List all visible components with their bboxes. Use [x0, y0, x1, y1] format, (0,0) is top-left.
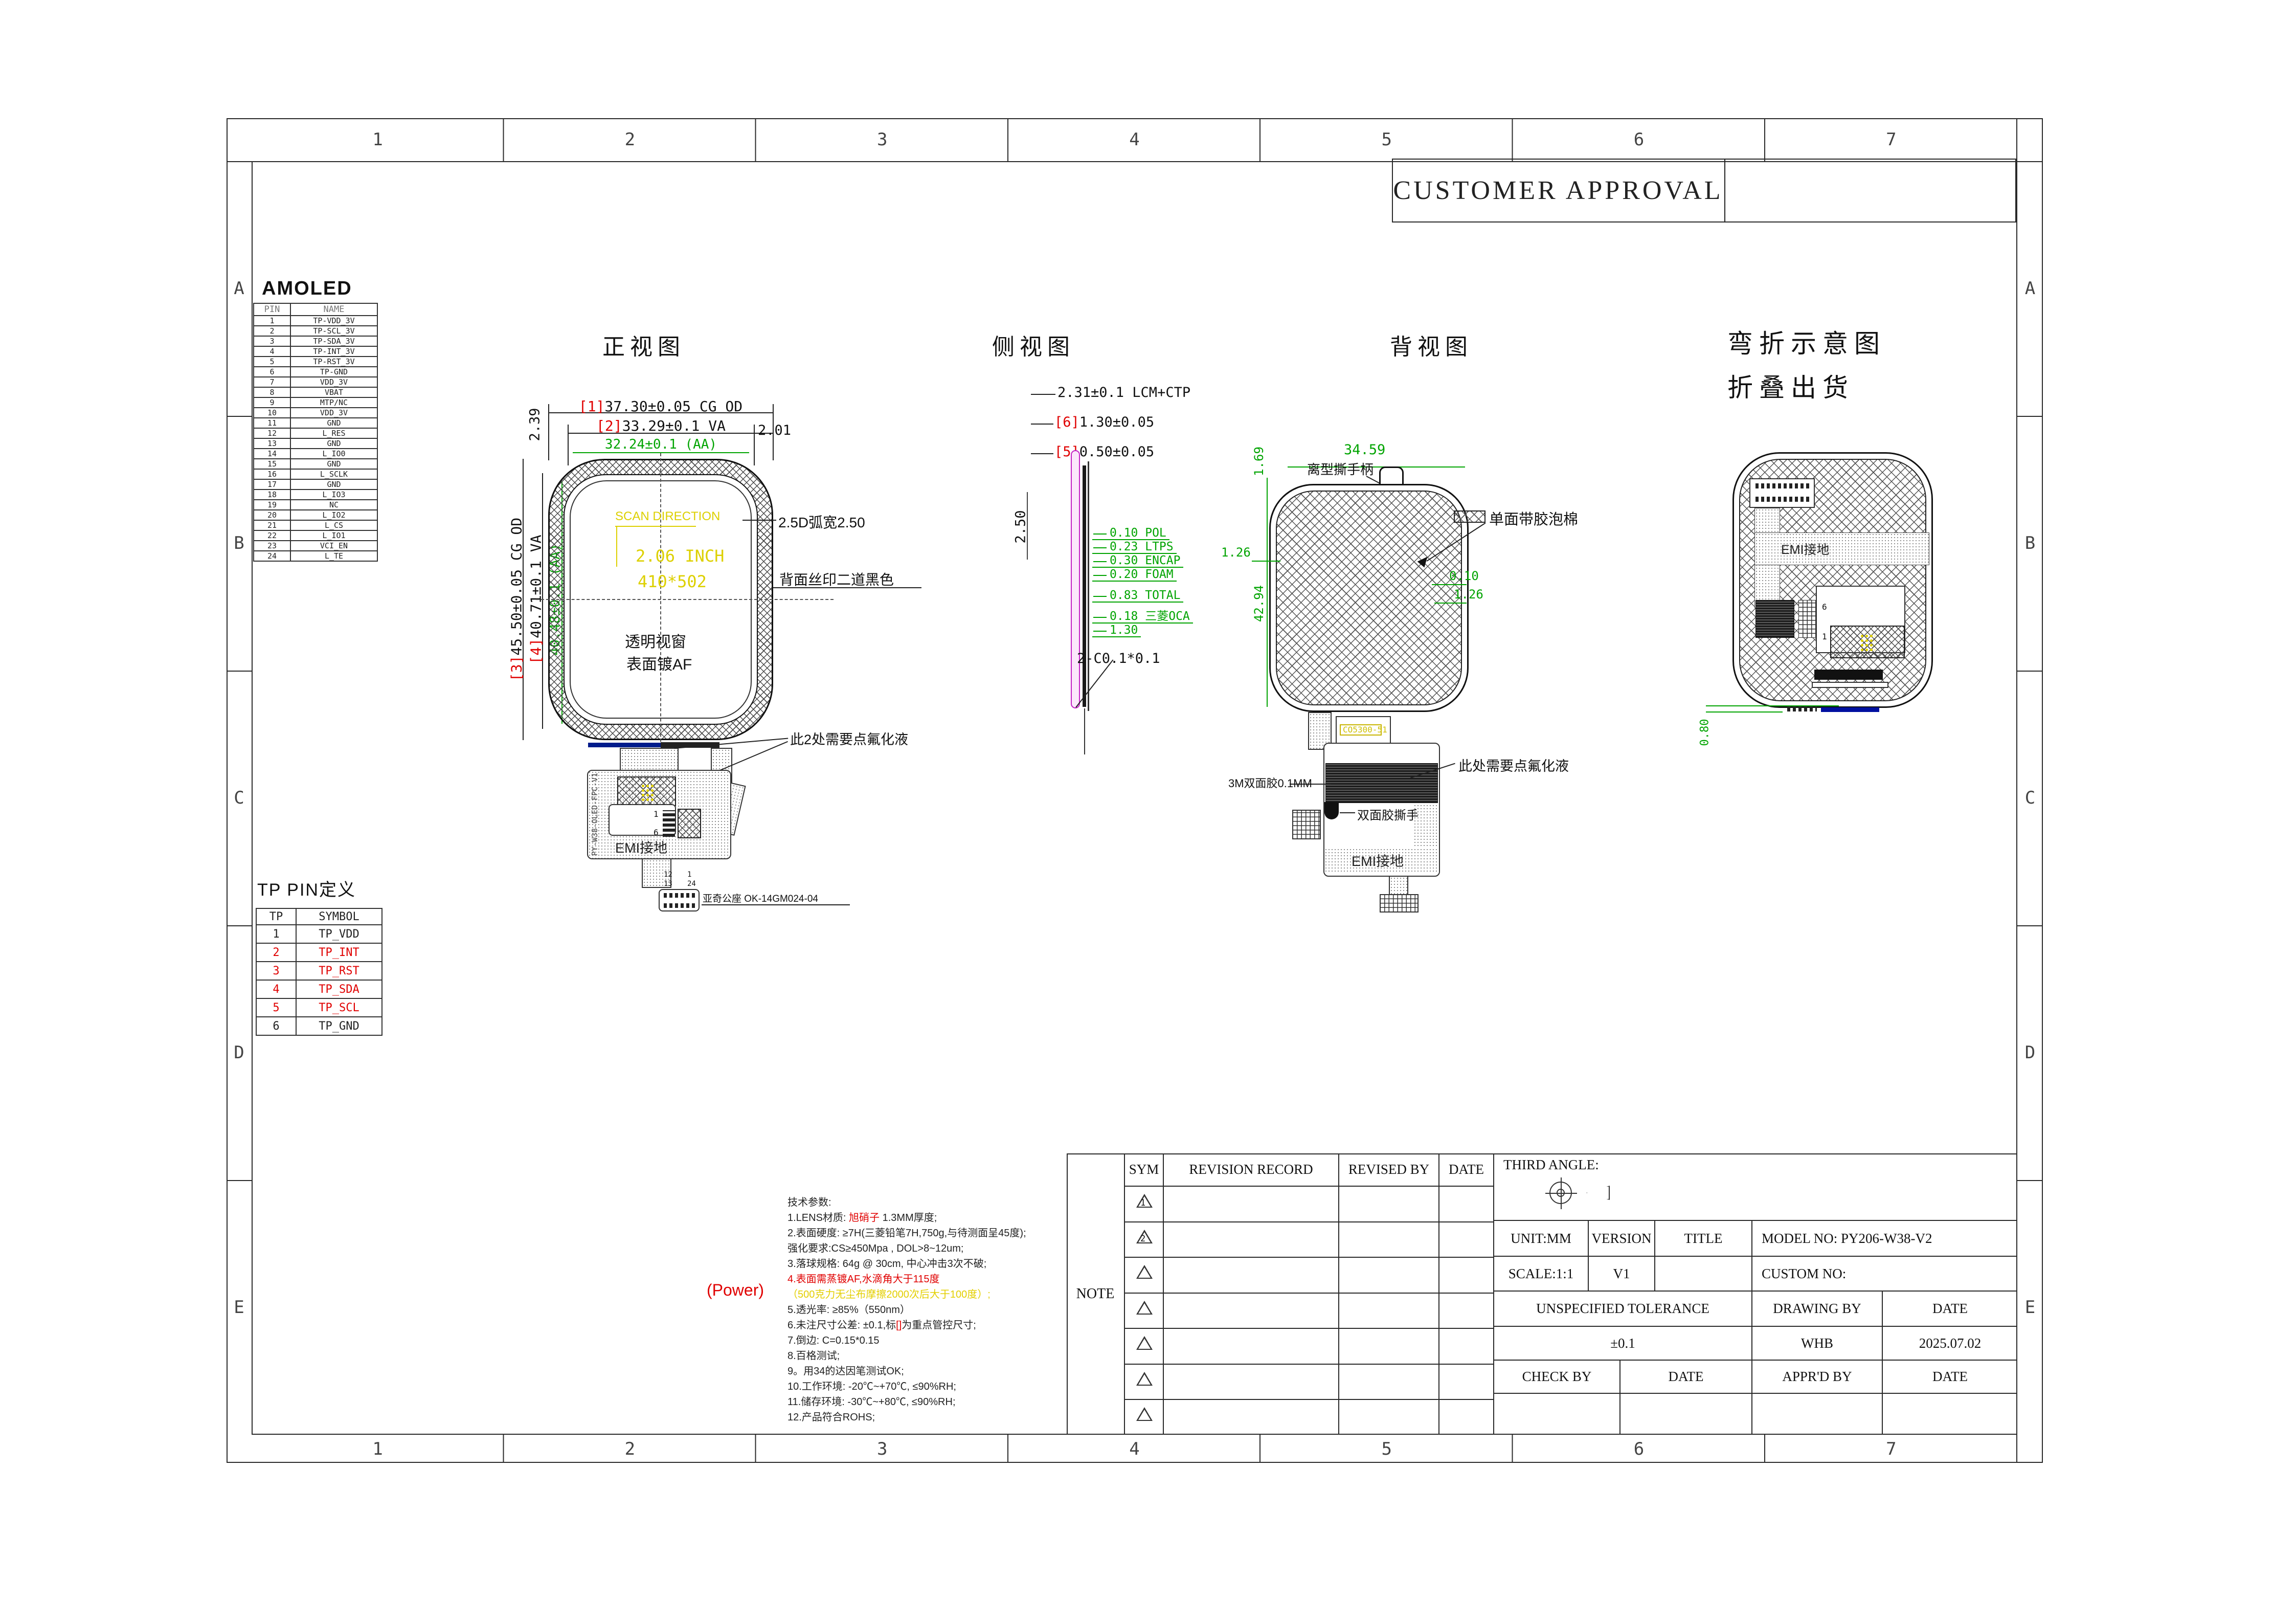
side-layer-label: 0.83 TOTAL	[1092, 590, 1183, 603]
back-fluoride-note: 此处需要点氟化液	[1458, 755, 1569, 775]
tp-pin-row: 4 TP_SDA	[256, 980, 382, 998]
amoled-pin-name: L_SCLK	[290, 469, 377, 479]
note-line: 1.LENS材质: 旭硝子 1.3MM厚度;	[787, 1210, 1026, 1226]
amoled-pin-name: MTP/NC	[290, 397, 377, 408]
bend-grid-pad	[1798, 600, 1816, 638]
front-fpc-ic	[617, 776, 676, 806]
bend-pin1-label: 1	[1822, 632, 1827, 641]
amoled-pin-name: TP-SDA_3V	[290, 336, 377, 346]
tp-pin-table: TP SYMBOL 1 TP_VDD 2 TP_INT 3 TP_RST 4 T…	[256, 908, 382, 1036]
zone-col-label: 6	[1513, 1435, 1765, 1463]
note-line: 3.落球规格: 64g @ 30cm, 中心冲击3次不破;	[787, 1256, 1026, 1272]
amoled-pin-row: 13 GND	[254, 438, 377, 449]
tail-pin-13: 13	[664, 880, 672, 888]
revision-row	[1125, 1293, 1493, 1328]
amoled-table-title: AMOLED	[262, 278, 352, 300]
dim-tag: [3]	[508, 656, 525, 682]
back-dark-stiffener	[1325, 763, 1438, 803]
amoled-pin-row: 10 VDD_3V	[254, 408, 377, 418]
revision-col-sym: SYM	[1125, 1153, 1163, 1186]
amoled-pin-row: 6 TP-GND	[254, 367, 377, 377]
unspecified-tolerance-cell: UNSPECIFIED TOLERANCE	[1494, 1292, 1751, 1326]
third-angle-symbol-circle	[1549, 1182, 1572, 1204]
amoled-pin-row: 1 TP-VDD_3V	[254, 316, 377, 326]
amoled-pin-number: 3	[254, 336, 290, 346]
amoled-pin-number: 22	[254, 530, 290, 541]
zone-row-label: C	[2017, 671, 2043, 925]
zone-strip-left: ABCDE	[227, 161, 252, 1435]
tp-pin-row: 6 TP_GND	[256, 1017, 382, 1035]
back-grid-pad	[1292, 810, 1321, 839]
bend-blue-bar	[1821, 707, 1879, 712]
zone-col-label: 3	[756, 118, 1008, 161]
tp-pin-number: 6	[256, 1017, 296, 1035]
amoled-pin-row: 16 L_SCLK	[254, 469, 377, 479]
ic-yellow-mark	[641, 784, 655, 801]
power-label: (Power)	[707, 1281, 764, 1300]
scan-arrow-down	[616, 527, 617, 567]
tp-pin-row: 3 TP_RST	[256, 962, 382, 980]
amoled-pin-number: 18	[254, 490, 290, 500]
amoled-pin-name: VDD_3V	[290, 377, 377, 387]
note-line: 10.工作环境: -20℃~+70℃, ≤90%RH;	[787, 1379, 1026, 1394]
amoled-pin-name: TP-SCL_3V	[290, 326, 377, 336]
note-column: NOTE	[1067, 1153, 1125, 1435]
ic-yellow-mark	[1860, 634, 1875, 652]
model-no-cell: MODEL NO: PY206-W38-V2	[1751, 1221, 2017, 1256]
zone-col-label: 1	[252, 118, 504, 161]
front-resolution: 410*502	[638, 572, 707, 591]
zone-strip-top: 1234567	[252, 118, 2017, 161]
side-dim-5: [5]0.50±0.05	[1054, 444, 1154, 460]
back-bottom-pad	[1380, 894, 1419, 913]
bend-connector-block	[1749, 478, 1815, 508]
front-bottom-connector	[659, 889, 700, 911]
drawing-by-value-cell: WHB	[1751, 1327, 1882, 1360]
revision-triangle-icon	[1136, 1265, 1153, 1279]
front-pin6-label: 6	[654, 828, 659, 837]
front-fluoride-note: 此2处需要点氟化液	[790, 728, 908, 748]
amoled-pin-name: TP-VDD_3V	[290, 316, 377, 326]
tail-pin-12: 12	[664, 871, 672, 879]
tp-pin-number: 3	[256, 962, 296, 980]
customer-approval-title: CUSTOMER APPROVAL	[1392, 159, 1724, 223]
amoled-pin-number: 8	[254, 387, 290, 397]
tail-pin-1: 1	[687, 871, 691, 879]
back-legend-swatch	[1454, 510, 1485, 523]
tp-pin-number: 5	[256, 998, 296, 1017]
amoled-pin-name: GND	[290, 459, 377, 469]
zone-col-label: 2	[504, 1435, 756, 1463]
zone-row-label: C	[227, 671, 252, 925]
front-arc-note: 2.5D弧宽2.50	[778, 511, 865, 532]
amoled-pin-number: 23	[254, 541, 290, 551]
back-tape-pull-note: 双面胶撕手	[1357, 805, 1419, 823]
approved-date-cell: DATE	[1882, 1361, 2017, 1393]
amoled-pin-name: L_IO3	[290, 490, 377, 500]
tp-pin-number: 4	[256, 980, 296, 998]
amoled-pin-row: 11 GND	[254, 418, 377, 428]
back-dim-169: 1.69	[1252, 447, 1266, 476]
back-emi-label: EMI接地	[1352, 850, 1404, 870]
dim-line	[1267, 478, 1268, 707]
note-line: 7.倒边: C=0.15*0.15	[787, 1333, 1026, 1348]
back-dim-126-left: 1.26	[1221, 545, 1251, 560]
amoled-pin-number: 1	[254, 316, 290, 326]
version-cell: VERSION	[1588, 1221, 1654, 1256]
tp-pin-row: 2 TP_INT	[256, 943, 382, 962]
amoled-col-name: NAME	[290, 303, 377, 316]
amoled-pin-row: 7 VDD_3V	[254, 377, 377, 387]
title-cell: TITLE	[1654, 1221, 1751, 1256]
side-panel-line	[1088, 461, 1089, 711]
amoled-pin-row: 12 L_RES	[254, 428, 377, 438]
amoled-pin-table: PIN NAME 1 TP-VDD_3V 2 TP-SCL_3V 3 TP-SD…	[253, 303, 378, 562]
note-line: 强化要求:CS≥450Mpa , DOL>8~12um;	[787, 1241, 1026, 1256]
dim-tag: [6]	[1054, 414, 1079, 430]
check-date-cell: DATE	[1619, 1361, 1751, 1393]
notes-lines: 1.LENS材质: 旭硝子 1.3MM厚度;2.表面硬度: ≥7H(三菱铅笔7H…	[787, 1210, 1026, 1425]
tp-table-title: TP PIN定义	[257, 876, 356, 901]
amoled-pin-number: 15	[254, 459, 290, 469]
revision-col-record: REVISION RECORD	[1163, 1153, 1338, 1186]
amoled-pin-number: 9	[254, 397, 290, 408]
amoled-pin-number: 4	[254, 346, 290, 357]
revision-row	[1125, 1364, 1493, 1399]
side-layer-label: 0.18 三菱OCA	[1092, 611, 1193, 624]
amoled-pin-name: TP-RST_3V	[290, 357, 377, 367]
tp-pin-row: 1 TP_VDD	[256, 925, 382, 943]
back-dim-3459: 34.59	[1344, 442, 1385, 458]
side-fpc-tail-line	[1084, 708, 1085, 754]
side-dim-250: 2.50	[1013, 510, 1029, 543]
amoled-pin-number: 6	[254, 367, 290, 377]
amoled-pin-name: L_IO1	[290, 530, 377, 541]
amoled-pin-row: 24 L_TE	[254, 551, 377, 561]
amoled-pin-row: 5 TP-RST_3V	[254, 357, 377, 367]
tail-pin-24: 24	[687, 880, 696, 888]
title-block-row-6	[1494, 1393, 2017, 1434]
amoled-pin-number: 19	[254, 500, 290, 510]
tp-col-symbol: SYMBOL	[296, 908, 382, 925]
dim-ext-line	[1027, 492, 1028, 560]
empty-cell	[1494, 1394, 1619, 1434]
amoled-pin-name: L_IO2	[290, 510, 377, 520]
amoled-pin-number: 11	[254, 418, 290, 428]
bend-module-outline: EMI接地 6 1	[1732, 452, 1933, 708]
note-line: 5.透光率: ≥85%（550nm）	[787, 1302, 1026, 1318]
front-fpc-pins	[663, 810, 675, 837]
front-silk-note: 背面丝印二道黑色	[779, 569, 894, 589]
dim-tick	[1434, 603, 1467, 604]
amoled-pin-name: GND	[290, 438, 377, 449]
front-scan-direction: SCAN DIRECTION	[615, 509, 720, 524]
note-line: 12.产品符合ROHS;	[787, 1410, 1026, 1425]
amoled-pin-name: GND	[290, 479, 377, 490]
scale-cell: SCALE:1:1	[1494, 1257, 1588, 1291]
bend-title-line1: 弯折示意图	[1727, 323, 1886, 360]
drawing-by-cell: DRAWING BY	[1751, 1292, 1882, 1326]
tolerance-value-cell: ±0.1	[1494, 1327, 1751, 1360]
amoled-pin-row: 22 L_IO1	[254, 530, 377, 541]
amoled-pin-number: 10	[254, 408, 290, 418]
front-view-title: 正视图	[602, 328, 685, 361]
custom-no-cell: CUSTOM NO:	[1751, 1257, 2017, 1291]
zone-col-label: 4	[1008, 118, 1260, 161]
amoled-pin-number: 5	[254, 357, 290, 367]
amoled-pin-row: 15 GND	[254, 459, 377, 469]
front-connector-note: 亚奇公座 OK-14GM024-04	[703, 891, 818, 905]
amoled-pin-name: TP-INT_3V	[290, 346, 377, 357]
approved-by-cell: APPR'D BY	[1751, 1361, 1882, 1393]
revision-triangle-icon	[1136, 1407, 1153, 1421]
amoled-pin-number: 17	[254, 479, 290, 490]
back-panel-outline	[1269, 484, 1469, 712]
amoled-pin-row: 17 GND	[254, 479, 377, 490]
customer-approval-divider	[1724, 159, 1725, 223]
amoled-pin-row: 21 L_CS	[254, 520, 377, 530]
amoled-col-pin: PIN	[254, 303, 290, 316]
amoled-pin-name: L_IO0	[290, 449, 377, 459]
side-panel-stack	[1083, 465, 1086, 707]
back-foam-hatch	[1276, 491, 1462, 705]
bend-dark-block	[1755, 600, 1794, 638]
revision-row	[1125, 1257, 1493, 1293]
dim-tick	[1252, 561, 1280, 562]
zone-row-label: D	[227, 925, 252, 1180]
revision-col-date: DATE	[1438, 1153, 1493, 1186]
zone-row-label: D	[2017, 925, 2043, 1180]
amoled-pin-row: 18 L_IO3	[254, 490, 377, 500]
zone-row-label: A	[2017, 161, 2043, 416]
amoled-pin-name: VBAT	[290, 387, 377, 397]
zone-col-label: 5	[1260, 118, 1513, 161]
date-value-cell: 2025.07.02	[1882, 1327, 2017, 1360]
zone-col-label: 5	[1260, 1435, 1513, 1463]
note-line: 11.储存环境: -30℃~+80℃, ≤90%RH;	[787, 1394, 1026, 1410]
revision-triangle-icon	[1136, 1372, 1153, 1386]
bend-emi-label: EMI接地	[1781, 540, 1829, 558]
revision-header: SYM REVISION RECORD REVISED BY DATE	[1125, 1153, 1493, 1186]
leader-line	[742, 520, 776, 521]
front-fpc-part-number: PY-W38-OLED-FPC-V1	[590, 773, 599, 856]
back-legend-label: 单面带胶泡棉	[1489, 507, 1578, 529]
title-block-row-1: UNIT:MM VERSION TITLE MODEL NO: PY206-W3…	[1494, 1220, 2017, 1256]
table-line	[1338, 1186, 1339, 1435]
date-header-cell: DATE	[1882, 1292, 2017, 1326]
leader-line	[1340, 812, 1355, 813]
revision-row: 2	[1125, 1221, 1493, 1257]
note-line: 8.百格测试;	[787, 1348, 1026, 1364]
note-line: 6.未注尺寸公差: ±0.1,标[]为重点管控尺寸;	[787, 1318, 1026, 1333]
dim-line	[1031, 424, 1053, 425]
zone-col-label: 1	[252, 1435, 504, 1463]
zone-row-label: E	[2017, 1180, 2043, 1435]
amoled-pin-number: 21	[254, 520, 290, 530]
title-block-grid: UNIT:MM VERSION TITLE MODEL NO: PY206-W3…	[1494, 1220, 2017, 1434]
bend-pin6-label: 6	[1822, 602, 1827, 612]
revision-col-revised: REVISED BY	[1338, 1153, 1438, 1186]
amoled-pin-number: 20	[254, 510, 290, 520]
side-layer-stack-labels: 0.10 POL0.23 LTPS0.30 ENCAP0.20 FOAM0.83…	[1092, 528, 1193, 639]
tp-pin-number: 2	[256, 943, 296, 962]
bend-title-line2: 折叠出货	[1727, 367, 1854, 404]
bend-black-bar	[1814, 670, 1883, 680]
note-line: 2.表面硬度: ≥7H(三菱铅笔7H,750g,与待测面呈45度);	[787, 1226, 1026, 1241]
amoled-pin-row: 20 L_IO2	[254, 510, 377, 520]
tp-pin-symbol: TP_RST	[296, 962, 382, 980]
amoled-pin-number: 2	[254, 326, 290, 336]
amoled-pin-number: 7	[254, 377, 290, 387]
tp-col-tp: TP	[256, 908, 296, 925]
scan-arrow-right	[615, 526, 696, 527]
revision-row: 1	[1125, 1186, 1493, 1221]
side-view-title: 侧视图	[992, 328, 1075, 361]
amoled-pin-number: 14	[254, 449, 290, 459]
front-fpc-stiffener	[678, 809, 701, 838]
amoled-pin-name: L_RES	[290, 428, 377, 438]
back-view-title: 背视图	[1390, 328, 1473, 361]
title-value-cell	[1654, 1257, 1751, 1291]
connector-pad-row	[1755, 483, 1810, 488]
amoled-pin-name: VCI_EN	[290, 541, 377, 551]
dim-tick	[1432, 584, 1467, 585]
amoled-pin-name: NC	[290, 500, 377, 510]
check-by-cell: CHECK BY	[1494, 1361, 1619, 1393]
revision-row	[1125, 1399, 1493, 1435]
dim-tag: [4]	[528, 638, 545, 664]
tp-pin-row: 5 TP_SCL	[256, 998, 382, 1017]
side-layer-label: 1.30	[1092, 625, 1141, 637]
front-size-inch: 2.06 INCH	[636, 546, 724, 566]
empty-cell	[1619, 1394, 1751, 1434]
amoled-pin-number: 24	[254, 551, 290, 561]
side-dim-total: 2.31±0.1 LCM+CTP	[1057, 385, 1190, 401]
front-dim-cg-od: [1]37.30±0.05 CG OD	[562, 398, 759, 415]
third-angle-label: THIRD ANGLE:	[1503, 1157, 1599, 1173]
zone-col-label: 7	[1765, 118, 2017, 161]
connector-pad-row	[664, 893, 695, 898]
table-line	[1163, 1186, 1164, 1435]
revision-triangle-icon	[1136, 1301, 1153, 1315]
front-emi-label: EMI接地	[615, 837, 667, 857]
note-line: 4.表面需蒸镀AF,水滴角大于115度	[787, 1272, 1026, 1287]
front-dim-right-gap: 2.01	[758, 422, 791, 438]
zone-strip-right: ABCDE	[2017, 161, 2043, 1435]
unit-cell: UNIT:MM	[1494, 1221, 1588, 1256]
amoled-pin-name: GND	[290, 418, 377, 428]
amoled-pin-row: 2 TP-SCL_3V	[254, 326, 377, 336]
amoled-pin-row: 14 L_IO0	[254, 449, 377, 459]
tp-pin-symbol: TP_INT	[296, 943, 382, 962]
amoled-pin-number: 12	[254, 428, 290, 438]
dim-line	[1706, 711, 1783, 713]
amoled-pin-name: TP-GND	[290, 367, 377, 377]
tp-pin-symbol: TP_GND	[296, 1017, 382, 1035]
dim-tag: [2]	[596, 417, 622, 434]
revision-triangle-icon	[1136, 1336, 1153, 1350]
tp-pin-symbol: TP_SCL	[296, 998, 382, 1017]
title-block-row-4: ±0.1 WHB 2025.07.02	[1494, 1326, 2017, 1360]
back-fpc-tail	[1389, 876, 1408, 895]
back-dim-4294: 42.94	[1252, 585, 1266, 622]
connector-pad-row	[664, 903, 695, 908]
note-column-label: NOTE	[1076, 1286, 1115, 1302]
side-lens-profile	[1071, 450, 1080, 708]
notes-title: 技术参数:	[787, 1195, 1026, 1210]
amoled-pin-row: 8 VBAT	[254, 387, 377, 397]
amoled-pin-number: 13	[254, 438, 290, 449]
front-dim-va: [2]33.29±0.1 VA	[568, 417, 754, 434]
bend-white-bar	[1812, 682, 1888, 688]
note-line: 9。用34的达因笔测试OK;	[787, 1364, 1026, 1379]
back-ic-label: CO5300-51	[1343, 725, 1387, 735]
revision-row	[1125, 1328, 1493, 1364]
back-tape-blob	[1324, 802, 1339, 819]
revision-rows: 1 2	[1125, 1186, 1493, 1435]
zone-row-label: A	[227, 161, 252, 416]
back-dim-126-right: 1.26	[1454, 587, 1483, 602]
title-block-row-2: SCALE:1:1 V1 CUSTOM NO:	[1494, 1256, 2017, 1291]
amoled-pin-number: 16	[254, 469, 290, 479]
zone-row-label: B	[2017, 416, 2043, 671]
title-block-row-3: UNSPECIFIED TOLERANCE DRAWING BY DATE	[1494, 1291, 2017, 1326]
amoled-pin-row: 3 TP-SDA_3V	[254, 336, 377, 346]
revision-number: 1	[1140, 1198, 1145, 1208]
note-line: （500克力无尘布摩擦2000次后大于100度）;	[787, 1287, 1026, 1302]
dim-line	[1031, 394, 1055, 395]
zone-col-label: 7	[1765, 1435, 2017, 1463]
front-pin1-label: 1	[654, 809, 659, 819]
dim-line	[1706, 705, 1839, 706]
dim-tag: [1]	[579, 398, 605, 415]
empty-cell	[1751, 1394, 1882, 1434]
empty-cell	[1882, 1394, 2017, 1434]
zone-col-label: 3	[756, 1435, 1008, 1463]
side-layer-label: 0.23 LTPS	[1092, 542, 1177, 554]
front-window-label-1: 透明视窗	[625, 629, 686, 652]
side-chamfer-note: 2-C0.1*0.1	[1077, 651, 1160, 666]
side-dim-6: [6]1.30±0.05	[1054, 414, 1154, 430]
bend-dim-080: 0.80	[1699, 719, 1712, 746]
amoled-pin-row: 19 NC	[254, 500, 377, 510]
amoled-pin-name: L_CS	[290, 520, 377, 530]
front-window-label-2: 表面镀AF	[626, 652, 692, 674]
tp-pin-symbol: TP_VDD	[296, 925, 382, 943]
amoled-pin-row: 9 MTP/NC	[254, 397, 377, 408]
back-dim-010: 0.10	[1449, 569, 1479, 583]
symbol-cross-v	[1561, 1177, 1562, 1209]
zone-strip-bottom: 1234567	[252, 1435, 2017, 1463]
amoled-pin-name: VDD_3V	[290, 408, 377, 418]
zone-col-label: 4	[1008, 1435, 1260, 1463]
revision-number: 2	[1140, 1234, 1145, 1244]
front-dim-left-top: 2.39	[527, 408, 543, 441]
dim-ext-line	[548, 404, 549, 460]
technical-notes: 技术参数: 1.LENS材质: 旭硝子 1.3MM厚度;2.表面硬度: ≥7H(…	[787, 1195, 1026, 1425]
zone-row-label: E	[227, 1180, 252, 1435]
tp-pin-symbol: TP_SDA	[296, 980, 382, 998]
front-dim-aa-width: 32.24±0.1 (AA)	[573, 437, 749, 452]
amoled-pin-row: 23 VCI_EN	[254, 541, 377, 551]
side-layer-label: 0.20 FOAM	[1092, 569, 1177, 582]
back-tape-note: 3M双面胶0.1MM	[1228, 774, 1312, 791]
connector-pad-row	[1755, 497, 1810, 502]
title-block-row-5: CHECK BY DATE APPR'D BY DATE	[1494, 1360, 2017, 1393]
table-line	[1438, 1186, 1439, 1435]
dim-line	[1031, 453, 1053, 454]
bend-ic-block	[1830, 626, 1905, 658]
